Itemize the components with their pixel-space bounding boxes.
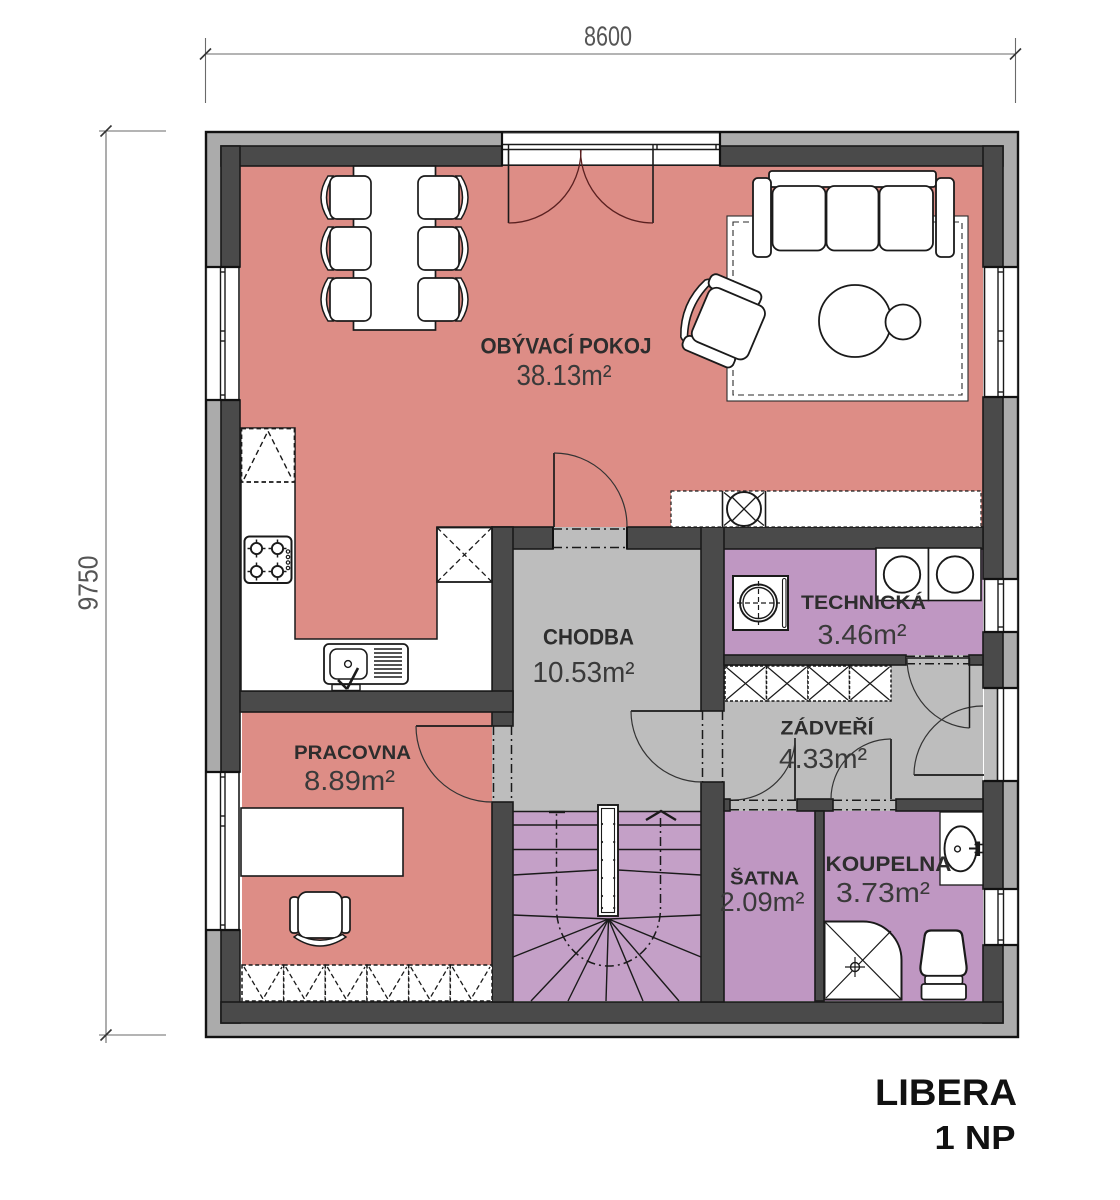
svg-text:KOUPELNA: KOUPELNA <box>826 853 952 876</box>
svg-text:2.09m²: 2.09m² <box>720 887 805 917</box>
svg-text:4.33m²: 4.33m² <box>779 743 867 774</box>
svg-text:3.73m²: 3.73m² <box>836 877 930 908</box>
svg-text:38.13m²: 38.13m² <box>517 360 612 392</box>
svg-text:8600: 8600 <box>584 21 632 52</box>
svg-text:1 NP: 1 NP <box>935 1120 1016 1157</box>
svg-text:PRACOVNA: PRACOVNA <box>294 742 411 764</box>
svg-text:8.89m²: 8.89m² <box>304 765 395 796</box>
svg-text:10.53m²: 10.53m² <box>533 657 635 689</box>
svg-text:LIBERA: LIBERA <box>875 1071 1017 1113</box>
svg-text:ŠATNA: ŠATNA <box>730 868 799 889</box>
svg-text:OBÝVACÍ POKOJ: OBÝVACÍ POKOJ <box>481 334 652 359</box>
svg-text:9750: 9750 <box>73 556 104 611</box>
svg-text:CHODBA: CHODBA <box>543 625 634 650</box>
svg-text:TECHNICKÁ: TECHNICKÁ <box>801 591 926 614</box>
svg-text:3.46m²: 3.46m² <box>818 619 907 650</box>
svg-text:ZÁDVEŘÍ: ZÁDVEŘÍ <box>781 716 875 740</box>
